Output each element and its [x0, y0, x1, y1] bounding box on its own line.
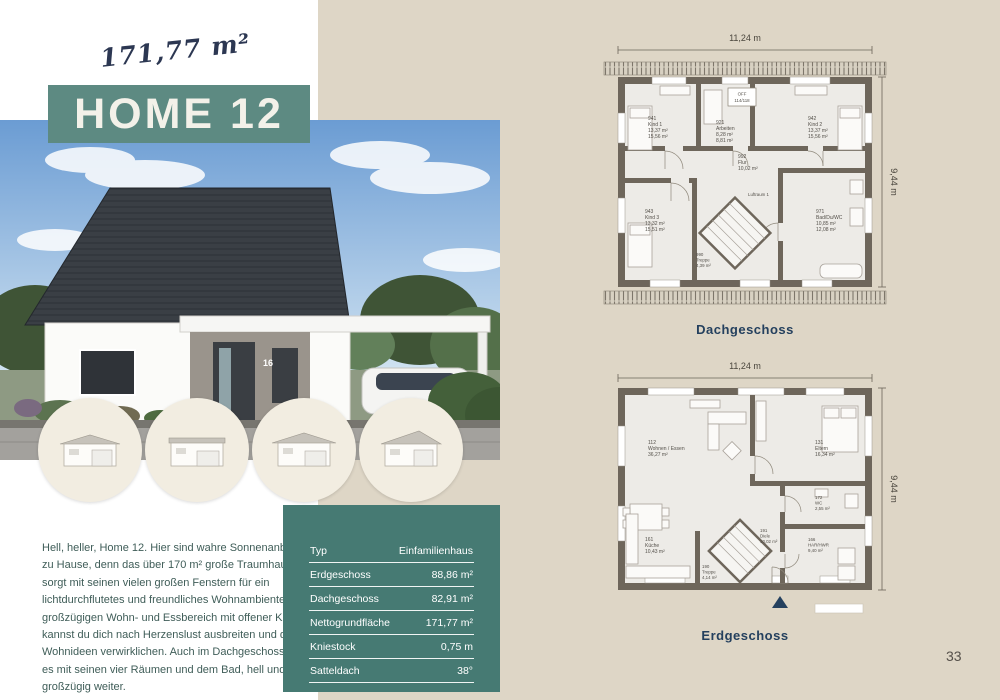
spec-value: 88,86 m²: [432, 569, 473, 581]
svg-text:9,44 m: 9,44 m: [889, 168, 899, 196]
svg-text:114/118: 114/118: [734, 98, 750, 103]
description-text: Hell, heller, Home 12. Hier sind wahre S…: [42, 540, 318, 696]
spec-label: Kniestock: [310, 641, 356, 653]
svg-text:OFF: OFF: [738, 92, 747, 97]
spec-label: Nettogrundfläche: [310, 617, 390, 629]
dimension-width: 11,24 m: [618, 361, 872, 382]
area-handwritten-note: 171,77 m²: [99, 28, 252, 73]
spec-row-typ: Typ Einfamilienhaus: [309, 539, 474, 563]
dimension-width: 11,24 m: [618, 33, 872, 54]
title-box: HOME 12: [48, 85, 310, 143]
spec-table-block: Typ Einfamilienhaus Erdgeschoss 88,86 m²…: [283, 505, 500, 692]
spec-table: Typ Einfamilienhaus Erdgeschoss 88,86 m²…: [309, 539, 474, 683]
spec-row-dachgeschoss: Dachgeschoss 82,91 m²: [309, 587, 474, 611]
svg-text:9,44 m: 9,44 m: [889, 475, 899, 503]
spec-label: Erdgeschoss: [310, 569, 371, 581]
spec-value: Einfamilienhaus: [399, 545, 473, 557]
page-number: 33: [946, 648, 962, 664]
spec-row-erdgeschoss: Erdgeschoss 88,86 m²: [309, 563, 474, 587]
floorplan-dachgeschoss: 11,24 m OFF 114/118: [590, 28, 900, 350]
roof-overhang-top: [604, 62, 886, 75]
spec-label: Satteldach: [310, 665, 360, 677]
scale-bar: [815, 604, 863, 613]
spec-value: 171,77 m²: [426, 617, 473, 629]
roof-variant-4: [359, 398, 463, 502]
roof-variant-2: [145, 398, 249, 502]
floorplan-dg-label: Dachgeschoss: [696, 322, 794, 337]
room-label-luftraum: Luftraum 1: [748, 192, 770, 197]
house-number: 16: [263, 358, 273, 368]
floorplan-eg-label: Erdgeschoss: [701, 628, 788, 643]
spec-value: 0,75 m: [441, 641, 473, 653]
roof-variant-1: [38, 398, 142, 502]
roof-variant-3: [252, 398, 356, 502]
house-variant-icon: [57, 427, 123, 473]
spec-label: Dachgeschoss: [310, 593, 379, 605]
svg-text:11,24 m: 11,24 m: [729, 33, 761, 43]
dimension-height: 9,44 m: [878, 77, 899, 287]
house-variant-icon: [164, 427, 230, 473]
house-variant-icon: [378, 427, 444, 473]
roof-overhang-bottom: [604, 291, 886, 304]
spec-row-satteldach: Satteldach 38°: [309, 659, 474, 683]
spec-row-kniestock: Kniestock 0,75 m: [309, 635, 474, 659]
svg-text:11,24 m: 11,24 m: [729, 361, 761, 371]
skylight-box: OFF 114/118: [728, 88, 756, 106]
house-variant-icon: [271, 427, 337, 473]
spec-row-nettogrundflaeche: Nettogrundfläche 171,77 m²: [309, 611, 474, 635]
spec-value: 82,91 m²: [432, 593, 473, 605]
page-title: HOME 12: [74, 93, 284, 136]
entrance-arrow-icon: [772, 596, 788, 608]
spec-label: Typ: [310, 545, 327, 557]
floorplan-erdgeschoss: 11,24 m: [590, 356, 900, 656]
spec-value: 38°: [457, 665, 473, 677]
dimension-height: 9,44 m: [878, 388, 899, 590]
